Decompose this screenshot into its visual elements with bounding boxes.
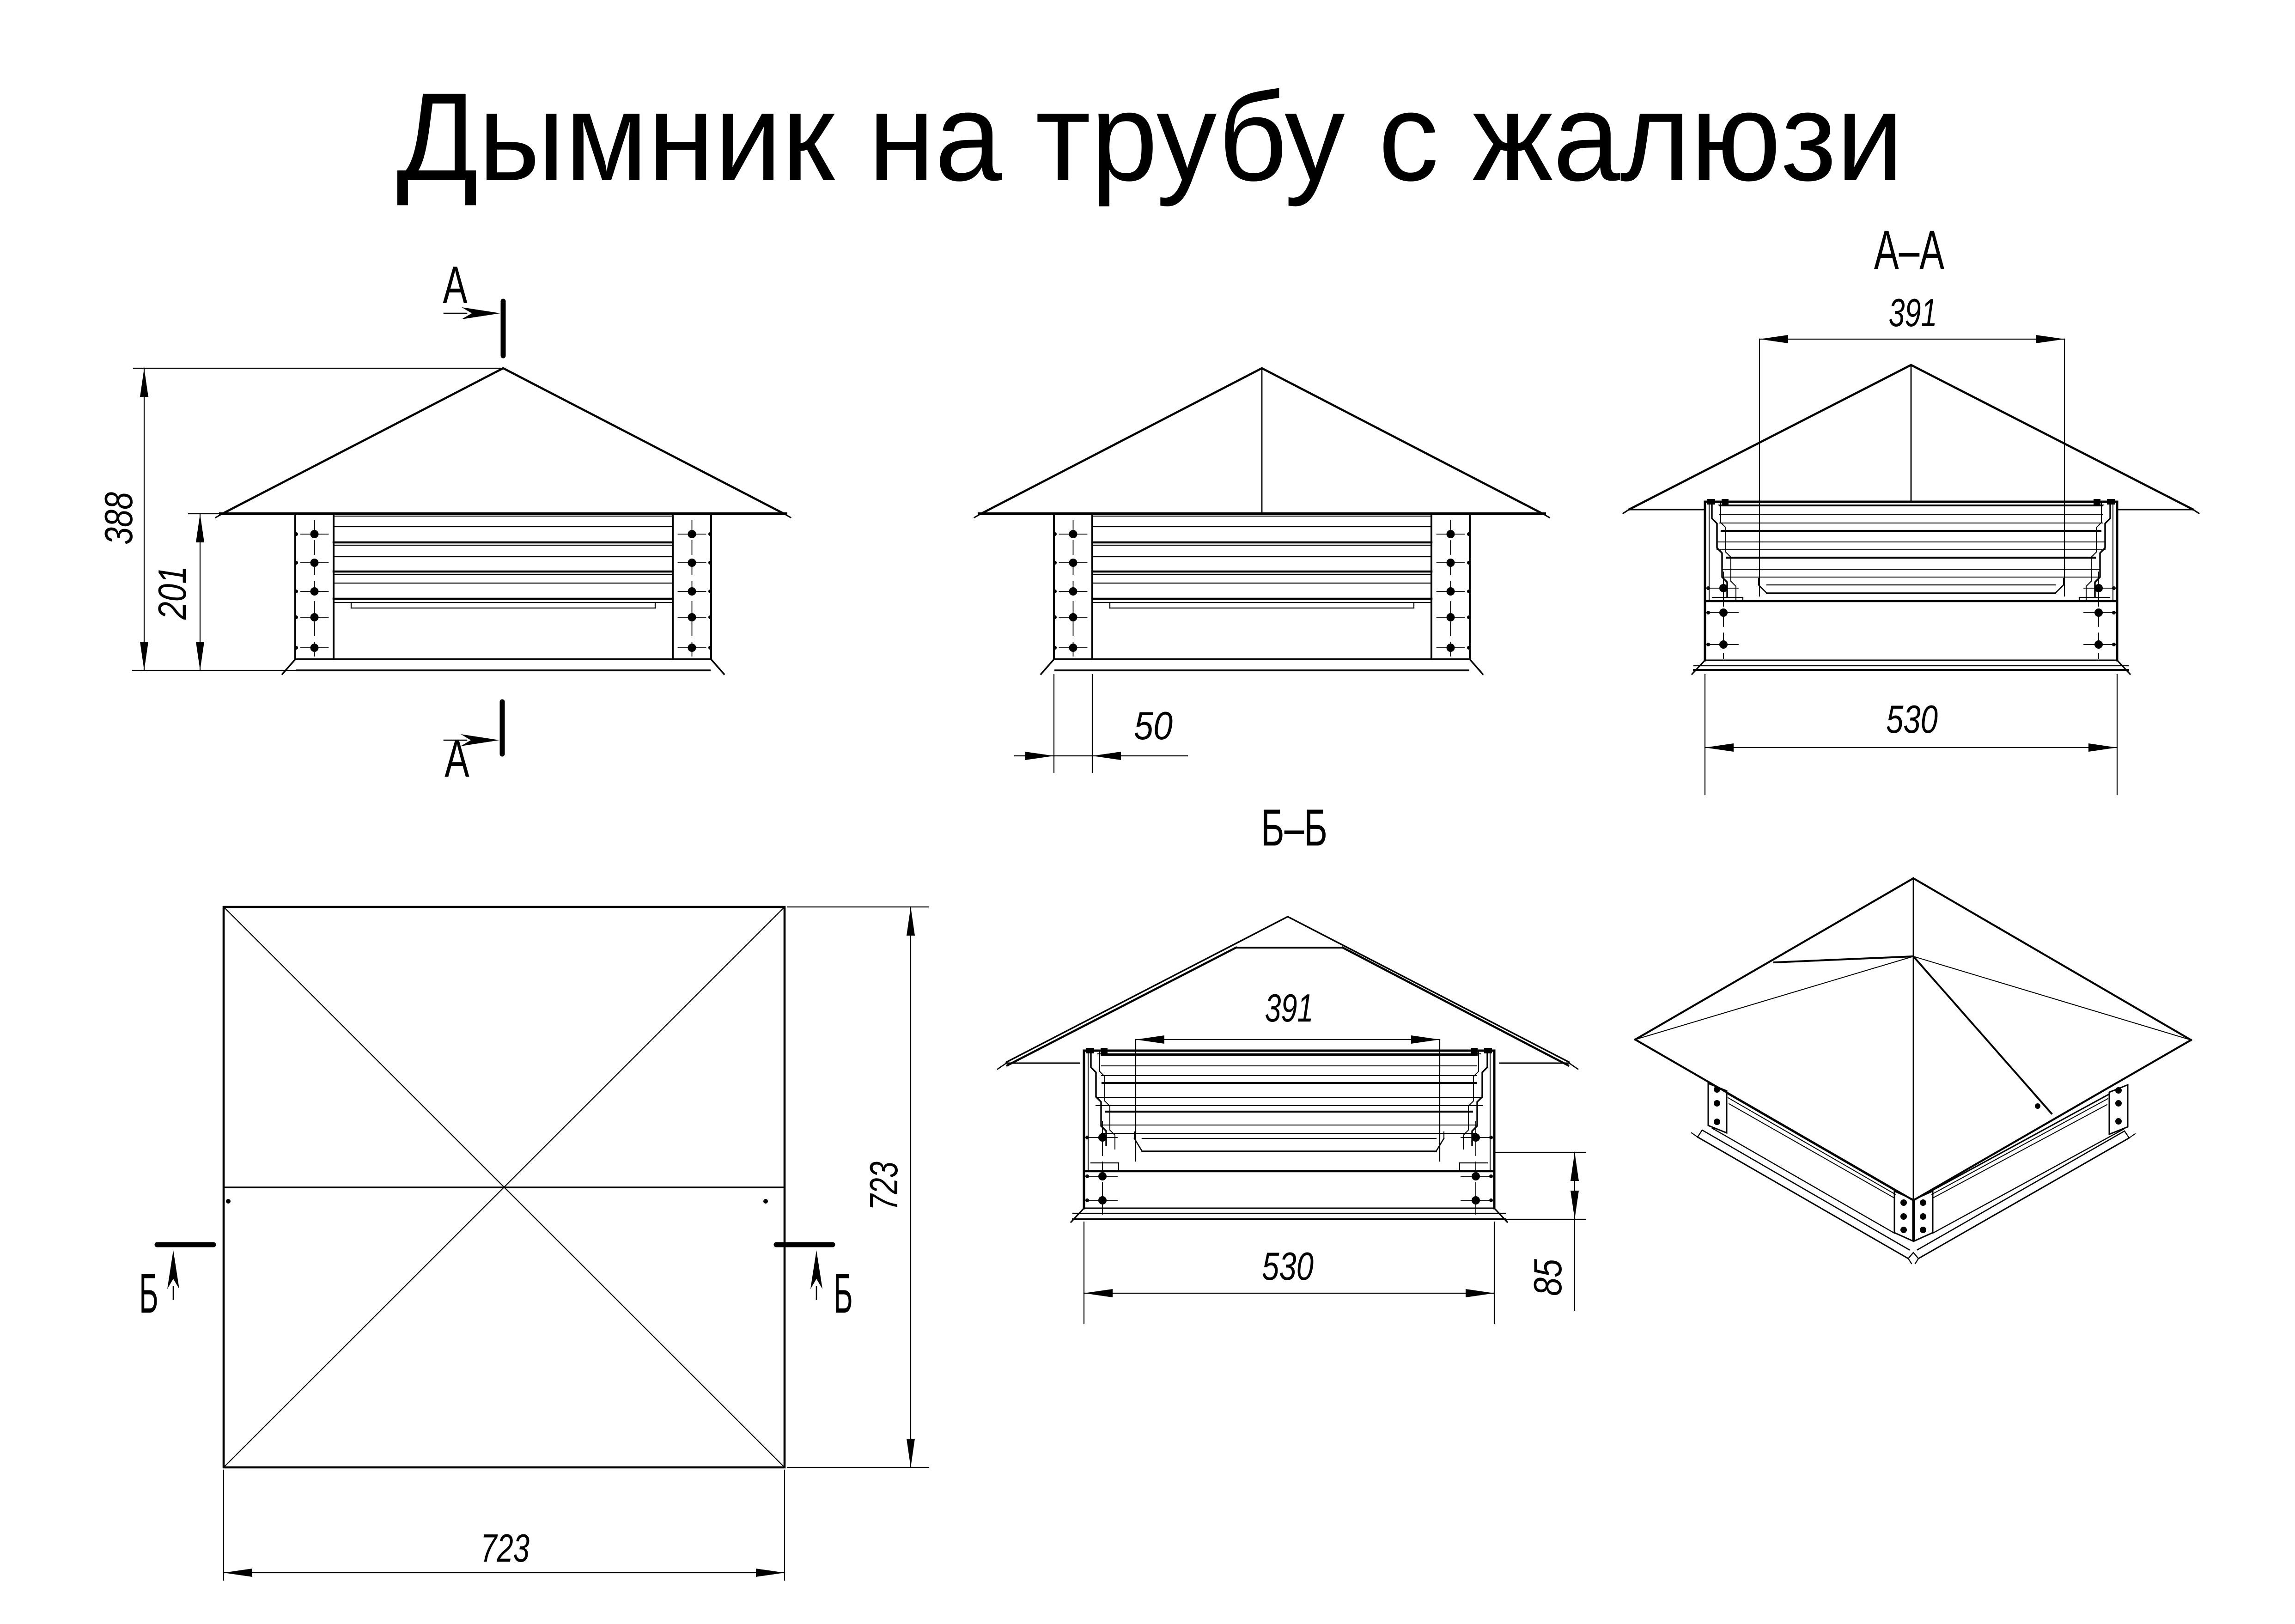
svg-text:50: 50 xyxy=(1134,704,1173,748)
svg-text:388: 388 xyxy=(97,492,141,545)
svg-text:Б: Б xyxy=(834,1262,853,1325)
svg-text:391: 391 xyxy=(1889,291,1937,335)
svg-text:А: А xyxy=(444,729,469,788)
svg-text:Б–Б: Б–Б xyxy=(1261,799,1327,857)
svg-text:723: 723 xyxy=(481,1527,530,1570)
svg-text:530: 530 xyxy=(1886,698,1938,742)
svg-text:201: 201 xyxy=(151,566,195,620)
svg-text:А: А xyxy=(443,255,468,314)
svg-text:723: 723 xyxy=(862,1162,906,1210)
svg-text:Б: Б xyxy=(139,1262,158,1325)
svg-text:530: 530 xyxy=(1262,1245,1314,1289)
svg-text:А–А: А–А xyxy=(1874,219,1944,281)
svg-text:Дымник на трубу с жалюзи: Дымник на трубу с жалюзи xyxy=(396,67,1904,208)
svg-text:391: 391 xyxy=(1265,986,1314,1030)
svg-text:85: 85 xyxy=(1526,1259,1570,1296)
